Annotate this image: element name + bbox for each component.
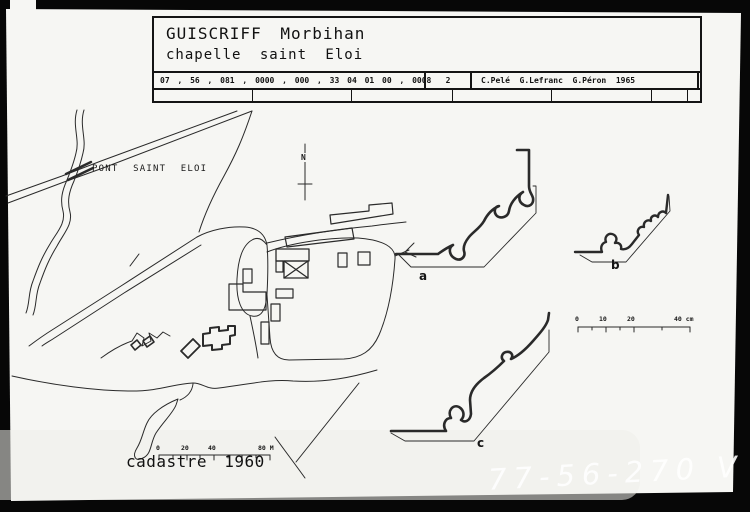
title-line-1: GUISCRIFF Morbihan xyxy=(166,23,700,45)
empty-cell xyxy=(252,90,351,101)
bottom-row xyxy=(154,90,700,101)
profile-c-label: c xyxy=(477,436,484,450)
empty-cell xyxy=(687,90,700,101)
title-line-2: chapelle saint Eloi xyxy=(166,45,700,66)
map-caption: cadastre 1960 xyxy=(126,452,265,471)
profiles-scale-label: 0 xyxy=(575,315,579,323)
place-label: PONT SAINT ELOI xyxy=(92,164,207,174)
title-block: GUISCRIFF Morbihan chapelle saint Eloi 0… xyxy=(152,16,702,103)
title-area: GUISCRIFF Morbihan chapelle saint Eloi xyxy=(154,18,700,73)
empty-cell xyxy=(551,90,651,101)
north-label: N xyxy=(300,153,307,162)
map-scale-label: 0 xyxy=(156,444,160,452)
empty-cell xyxy=(452,90,551,101)
empty-cell xyxy=(351,90,452,101)
sheet-number-cell: 2 xyxy=(424,73,470,88)
map-scale-label: 80 M xyxy=(258,444,274,452)
profiles-scale-label: 10 xyxy=(599,315,607,323)
code-row: 07 , 56 , 081 , 0000 , 000 , 33 04 01 00… xyxy=(154,73,700,90)
profile-a-label: a xyxy=(419,269,427,283)
empty-cell xyxy=(697,73,700,88)
inventory-code-cell: 07 , 56 , 081 , 0000 , 000 , 33 04 01 00… xyxy=(154,76,424,85)
profiles-scale-label: 20 xyxy=(627,315,635,323)
map-scale-label: 40 xyxy=(208,444,216,452)
photo-frame: GUISCRIFF Morbihan chapelle saint Eloi 0… xyxy=(0,0,750,512)
empty-cell xyxy=(154,90,252,101)
profile-b-label: b xyxy=(611,258,620,272)
credits-cell: C.Pelé G.Lefranc G.Péron 1965 xyxy=(470,73,697,88)
empty-cell xyxy=(651,90,687,101)
map-scale-label: 20 xyxy=(181,444,189,452)
card-corner-notch xyxy=(10,0,36,11)
profiles-scale-label: 40 cm xyxy=(674,315,694,323)
